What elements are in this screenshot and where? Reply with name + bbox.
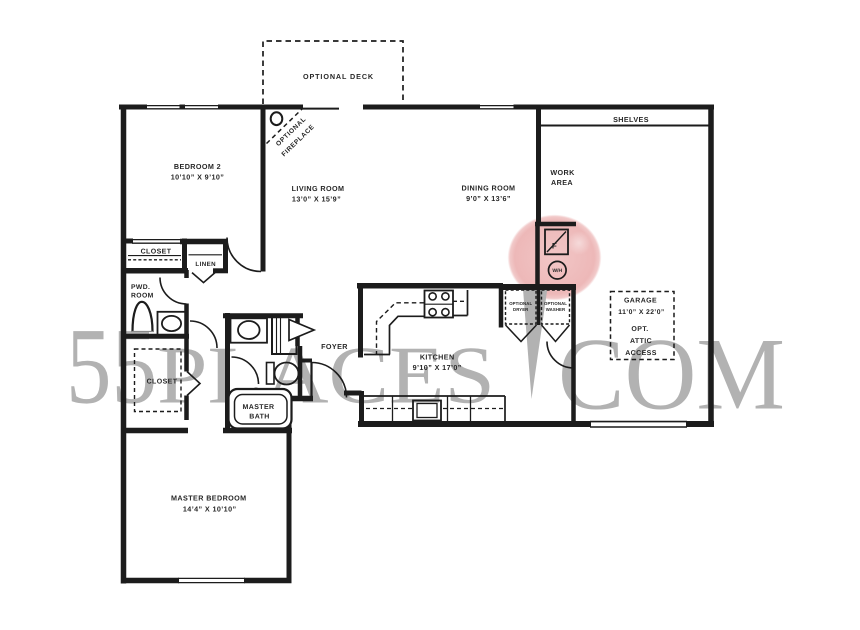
svg-text:AREA: AREA [551, 178, 573, 187]
svg-text:OPTIONAL: OPTIONAL [544, 301, 567, 306]
svg-text:CLOSET: CLOSET [147, 378, 178, 385]
svg-text:MASTER BEDROOM: MASTER BEDROOM [171, 494, 246, 503]
svg-text:LIVING ROOM: LIVING ROOM [292, 184, 345, 193]
svg-text:BEDROOM 2: BEDROOM 2 [174, 162, 221, 171]
svg-text:LINEN: LINEN [195, 261, 216, 268]
svg-text:DINING ROOM: DINING ROOM [462, 184, 516, 193]
svg-text:FOYER: FOYER [321, 342, 348, 351]
svg-text:11’0” X 22’0”: 11’0” X 22’0” [618, 309, 664, 316]
svg-text:F: F [552, 242, 557, 251]
svg-text:55: 55 [66, 306, 157, 427]
svg-text:KITCHEN: KITCHEN [420, 352, 455, 361]
svg-text:SHELVES: SHELVES [613, 115, 649, 124]
svg-text:ATTIC: ATTIC [630, 338, 652, 345]
svg-text:13’0” X 15’9”: 13’0” X 15’9” [292, 195, 341, 204]
svg-text:ROOM: ROOM [131, 293, 154, 300]
svg-text:WASHER: WASHER [546, 307, 566, 312]
svg-text:10’10” X 9’10”: 10’10” X 9’10” [171, 173, 225, 182]
svg-text:W/H: W/H [552, 268, 562, 274]
svg-text:COM: COM [558, 318, 785, 432]
svg-text:ACCESS: ACCESS [625, 350, 657, 357]
svg-text:WORK: WORK [550, 168, 575, 177]
svg-text:9’0” X 13’6”: 9’0” X 13’6” [466, 194, 511, 203]
svg-text:OPT.: OPT. [631, 326, 648, 333]
svg-text:BATH: BATH [249, 413, 270, 420]
svg-text:9’10” X 17’0”: 9’10” X 17’0” [413, 363, 462, 372]
svg-text:DRYER: DRYER [513, 307, 529, 312]
svg-text:MASTER: MASTER [243, 404, 275, 411]
svg-text:GARAGE: GARAGE [624, 297, 657, 304]
svg-text:14’4” X 10’10”: 14’4” X 10’10” [183, 505, 237, 514]
svg-text:CLOSET: CLOSET [141, 248, 172, 255]
svg-text:PWD.: PWD. [131, 284, 150, 291]
svg-text:OPTIONAL: OPTIONAL [509, 301, 532, 306]
svg-text:OPTIONAL DECK: OPTIONAL DECK [303, 72, 374, 81]
